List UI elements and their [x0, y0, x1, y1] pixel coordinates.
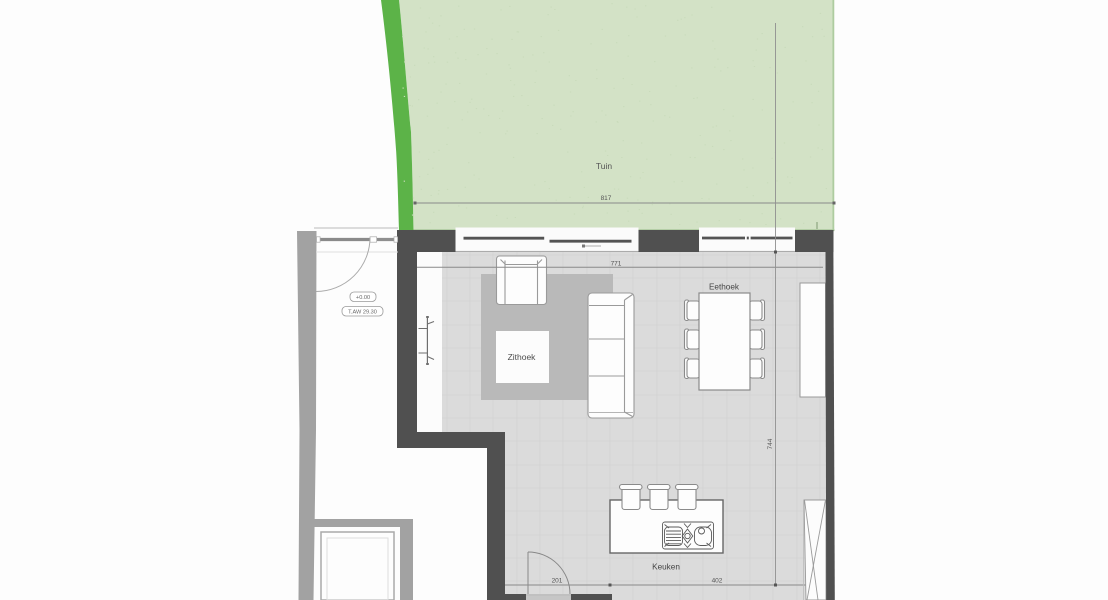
svg-text:Zithoek: Zithoek	[508, 352, 537, 362]
svg-text:T.AW 29.30: T.AW 29.30	[348, 310, 377, 316]
svg-text:Eethoek: Eethoek	[709, 283, 740, 292]
svg-text:+0.00: +0.00	[356, 295, 370, 301]
svg-text:201: 201	[552, 578, 563, 585]
svg-text:Tuin: Tuin	[596, 161, 612, 171]
svg-text:Keuken: Keuken	[652, 563, 680, 572]
svg-text:744: 744	[767, 438, 774, 449]
svg-text:771: 771	[611, 261, 622, 268]
svg-text:402: 402	[712, 578, 723, 585]
svg-text:817: 817	[601, 195, 612, 202]
